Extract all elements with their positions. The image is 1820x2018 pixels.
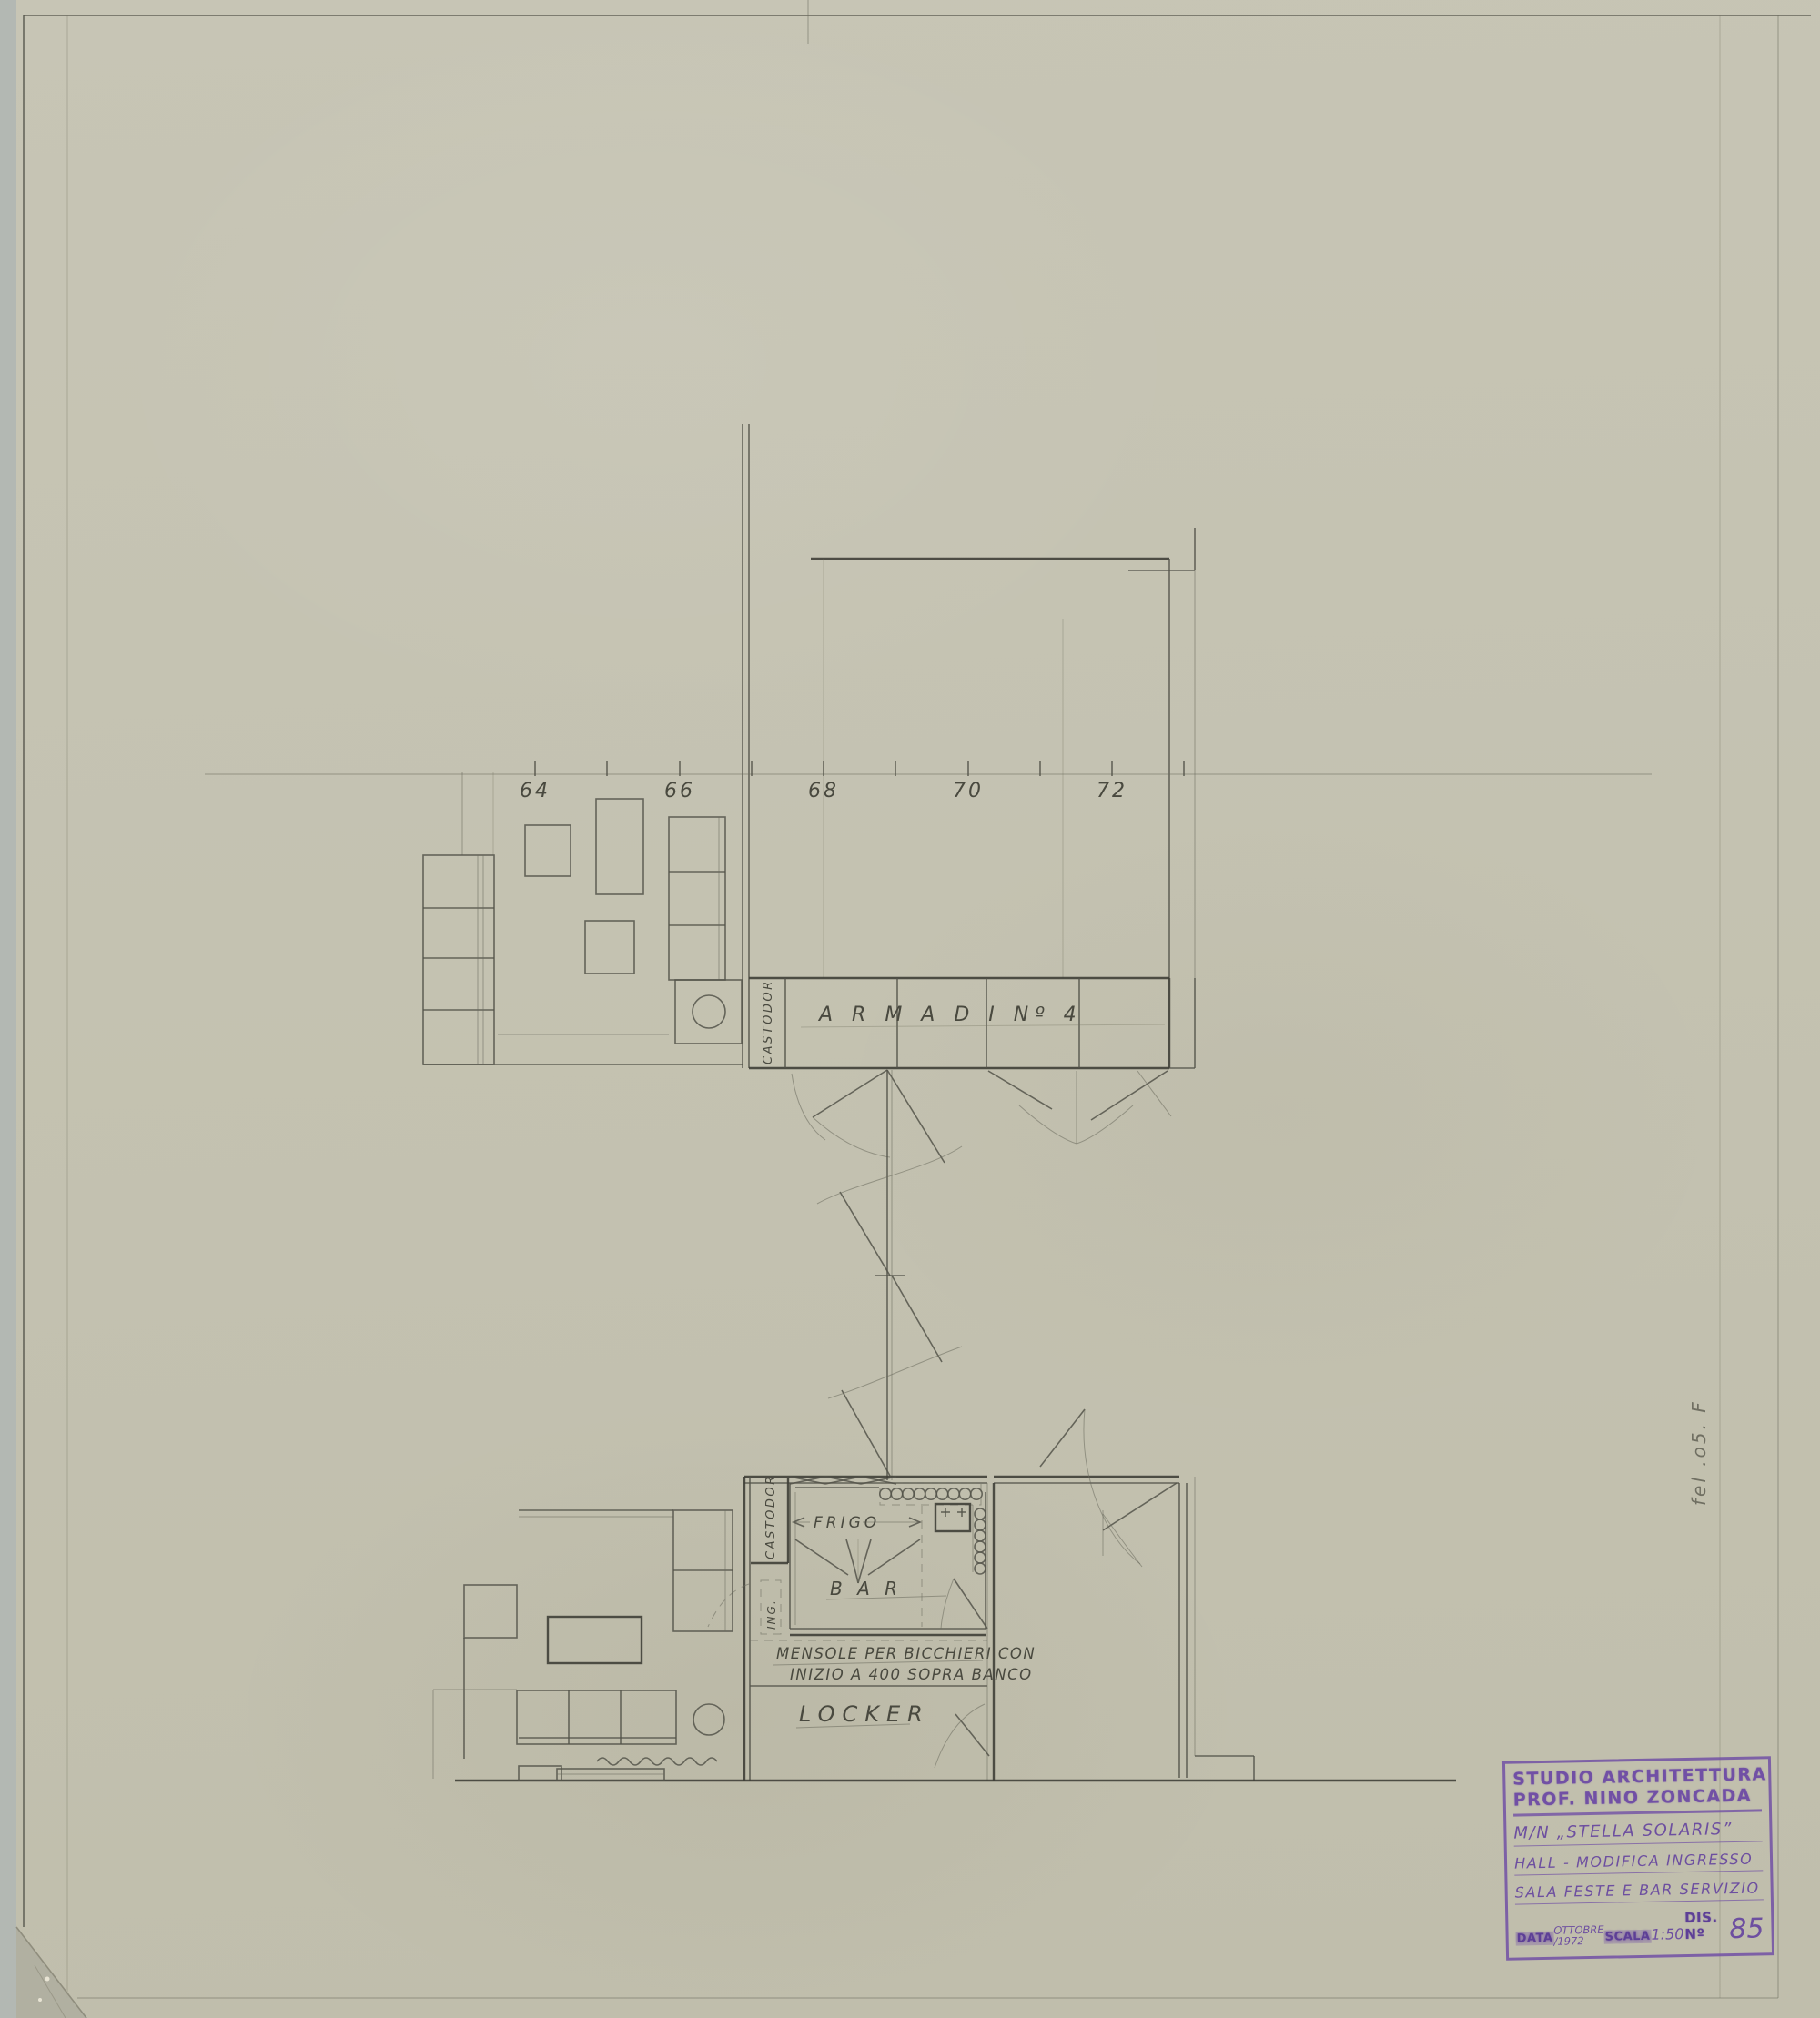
upper-lounge-furniture [423, 772, 743, 1064]
lower-lounge-furniture [433, 1510, 733, 1781]
scala-label: SCALA [1604, 1930, 1652, 1944]
frame-label-70: 70 [953, 780, 984, 802]
mensole-line1: MENSOLE PER BICCHIERI CON [776, 1645, 1036, 1662]
bar-counter: FRIGO B A R [790, 1483, 986, 1635]
castodor-label-lower: CASTODOR [764, 1474, 778, 1559]
frame-label-68: 68 [808, 780, 839, 802]
title-block: STUDIO ARCHITETTURA PROF. NINO ZONCADA M… [1502, 1756, 1774, 1961]
dis-number: 85 [1729, 1917, 1764, 1942]
locker-label: LOCKER [799, 1701, 930, 1727]
frame-datum: 64 66 68 70 72 [205, 761, 1652, 802]
frame-label-64: 64 [520, 780, 551, 802]
drawing-subject-line1: HALL - MODIFICA INGRESSO [1514, 1850, 1763, 1875]
folding-door-zigzag [817, 1070, 962, 1480]
scanned-drawing-sheet: 64 66 68 70 72 [0, 0, 1820, 2018]
upper-plan: 64 66 68 70 72 [205, 424, 1652, 1163]
mensole-line2: INIZIO A 400 SOPRA BANCO [790, 1666, 1033, 1683]
data-label: DATA [1516, 1932, 1554, 1946]
ing-label: ING. [765, 1599, 778, 1630]
lower-plan: CASTODOR [433, 1409, 1456, 1781]
castodor-cell-lower: CASTODOR [751, 1474, 788, 1563]
armadi-label: A R M A D I Nº 4 [817, 1004, 1083, 1026]
frame-label-72: 72 [1097, 780, 1127, 802]
right-room [1040, 1409, 1254, 1781]
curtain-squiggle [597, 1758, 717, 1765]
castodor-label-upper: CASTODOR [762, 979, 775, 1064]
date-year: /1972 [1553, 1935, 1604, 1947]
stamp-bottom-row: DATA OTTOBRE /1972 SCALA 1:50 DIS. Nº 85 [1515, 1908, 1764, 1945]
studio-name-line2: PROF. NINO ZONCADA [1513, 1785, 1762, 1811]
armadi-cabinets: CASTODOR A R M A D I Nº 4 [749, 978, 1195, 1068]
frame-label-66: 66 [664, 780, 695, 802]
drawing-subject-line2: SALA FESTE E BAR SERVIZIO [1515, 1879, 1764, 1904]
bar-label: B A R [830, 1578, 902, 1599]
upper-door-swings [792, 1070, 1171, 1163]
frigo-label: FRIGO [814, 1514, 880, 1532]
vessel-name: M/N „STELLA SOLARIS” [1513, 1819, 1762, 1846]
date-value: OTTOBRE /1972 [1553, 1924, 1604, 1947]
scala-value: 1:50 [1651, 1925, 1683, 1943]
dis-label: DIS. Nº [1683, 1909, 1730, 1942]
sheet-border [24, 0, 1811, 1998]
plan-drawing: 64 66 68 70 72 [0, 0, 1820, 2018]
folded-corner [16, 1927, 86, 2018]
margin-handwritten-note: fel .o5. F [1688, 1306, 1719, 1506]
